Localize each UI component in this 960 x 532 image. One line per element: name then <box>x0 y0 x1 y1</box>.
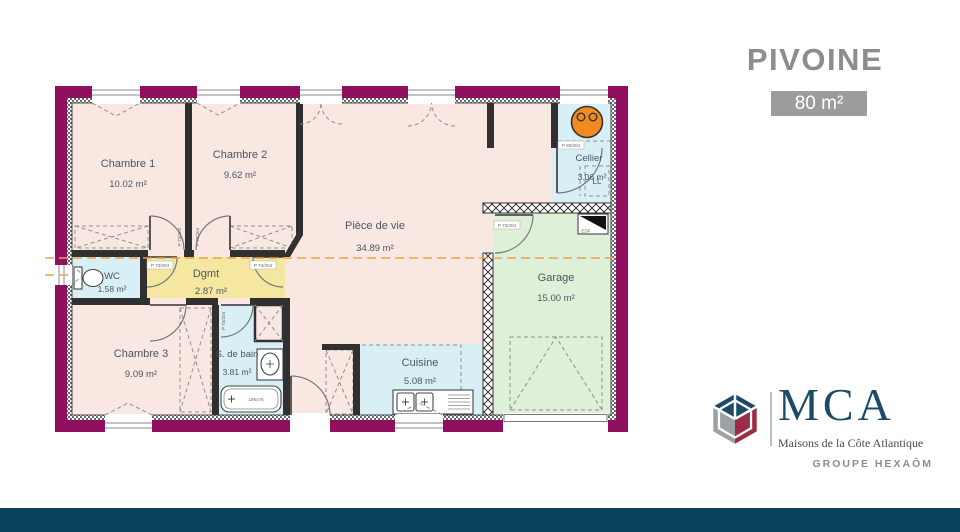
brand-name: MCA <box>778 378 895 431</box>
mca-logo-icon <box>706 390 764 450</box>
room-hall-name: Dgmt <box>193 268 219 280</box>
washing-machine-label: LL <box>593 177 602 186</box>
room-living-area: 34.89 m² <box>356 243 394 254</box>
brand-divider <box>770 392 772 446</box>
room-garage-area: 15.00 m² <box>537 293 575 304</box>
footer-accent-bar <box>0 508 960 532</box>
room-hall-area: 2.87 m² <box>195 286 227 297</box>
room-chambre1-name: Chambre 1 <box>101 158 155 170</box>
bathtub-size-label: 190x75 <box>248 397 264 402</box>
room-cellar-name: Cellier <box>576 153 603 164</box>
room-chambre3-name: Chambre 3 <box>114 348 168 360</box>
flyer-page: 190x75 EDF <box>0 0 960 532</box>
area-badge: 80 m² <box>771 91 867 116</box>
room-wc-area: 1.58 m² <box>98 284 127 294</box>
water-heater-icon <box>572 107 603 138</box>
plan-title: PIVOINE <box>690 42 940 78</box>
brand-group: GROUPE HEXAÔM <box>778 458 933 470</box>
room-chambre1-area: 10.02 m² <box>109 179 147 190</box>
room-bathroom-name: S. de bain <box>216 349 259 360</box>
svg-text:P 83/204: P 83/204 <box>562 143 581 148</box>
room-bathroom-area: 3.81 m² <box>223 367 252 377</box>
svg-text:P 73/204: P 73/204 <box>254 263 273 268</box>
electrical-panel-label: EDF <box>581 229 590 234</box>
svg-text:P 73/204: P 73/204 <box>151 263 170 268</box>
garage-door <box>504 415 607 422</box>
room-garage-name: Garage <box>538 272 575 284</box>
room-chambre2-name: Chambre 2 <box>213 149 267 161</box>
svg-text:P 73/204: P 73/204 <box>221 311 226 330</box>
electrical-panel-icon: EDF <box>578 214 608 234</box>
bathtub-icon: 190x75 <box>221 386 281 412</box>
room-chambre2-area: 9.62 m² <box>224 170 256 181</box>
room-kitchen-name: Cuisine <box>402 357 439 369</box>
room-living-name: Pièce de vie <box>345 220 405 232</box>
room-wc-name: WC <box>104 271 120 282</box>
svg-text:P 73/204: P 73/204 <box>498 223 517 228</box>
garage-floor <box>493 213 611 415</box>
washbasin-icon <box>257 349 283 380</box>
svg-text:P 73/204: P 73/204 <box>195 227 200 246</box>
room-kitchen-area: 5.08 m² <box>404 376 436 387</box>
room-chambre3-area: 9.09 m² <box>125 369 157 380</box>
brand-tagline: Maisons de la Côte Atlantique <box>778 436 943 451</box>
svg-text:P 73/204: P 73/204 <box>177 227 182 246</box>
brand-block: MCA Maisons de la Côte Atlantique GROUPE… <box>700 386 945 482</box>
bathroom-closet <box>255 305 283 341</box>
